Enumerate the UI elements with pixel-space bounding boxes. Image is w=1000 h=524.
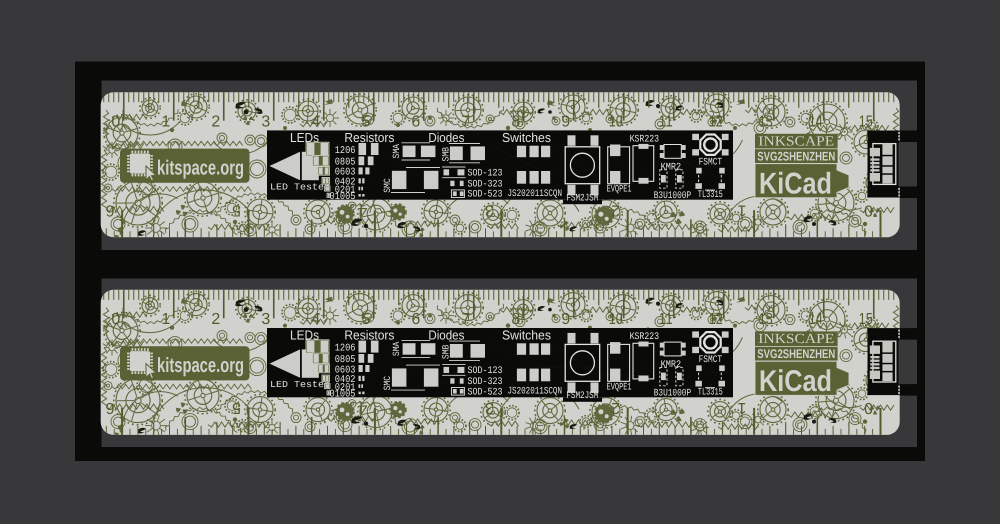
svg-text:SMA: SMA (391, 341, 402, 356)
svg-text:6: 6 (106, 202, 115, 219)
svg-text:INKSCAPE: INKSCAPE (758, 135, 834, 150)
svg-text:5: 5 (361, 114, 370, 131)
svg-text:kitspace.org: kitspace.org (157, 157, 244, 180)
svg-text:KiCad: KiCad (759, 168, 832, 201)
svg-text:Switches: Switches (502, 130, 551, 145)
svg-text:FSMCT: FSMCT (699, 157, 723, 168)
svg-text:SMC: SMC (382, 178, 393, 193)
svg-text:2: 2 (211, 114, 220, 131)
svg-text:6: 6 (106, 399, 115, 416)
svg-text:3: 3 (261, 311, 270, 328)
svg-text:1: 1 (738, 399, 747, 416)
svg-text:FSMCT: FSMCT (699, 355, 723, 366)
svg-text:4: 4 (311, 311, 320, 328)
svg-text:4: 4 (311, 114, 320, 131)
svg-text:01005: 01005 (330, 389, 356, 401)
svg-text:B3U1000P: B3U1000P (654, 191, 692, 202)
svg-text:INKSCAPE: INKSCAPE (758, 332, 834, 347)
svg-text:2: 2 (611, 399, 620, 416)
svg-text:0: 0 (111, 114, 120, 131)
svg-text:1206: 1206 (335, 145, 356, 157)
svg-text:EVQPE1: EVQPE1 (607, 382, 632, 393)
svg-text:8: 8 (511, 311, 520, 328)
svg-text:9: 9 (561, 114, 570, 131)
svg-text:Resistors: Resistors (344, 327, 394, 342)
svg-text:kitspace.org: kitspace.org (157, 354, 244, 377)
svg-text:SVG2SHENZHEN: SVG2SHENZHEN (757, 347, 835, 361)
svg-text:SOD-123: SOD-123 (468, 168, 503, 179)
svg-text:9: 9 (561, 311, 570, 328)
svg-text:14: 14 (809, 311, 823, 328)
svg-text:SOD-123: SOD-123 (468, 366, 503, 377)
svg-text:5: 5 (361, 311, 370, 328)
svg-text:KSR223: KSR223 (630, 332, 660, 343)
svg-text:SVG2SHENZHEN: SVG2SHENZHEN (757, 149, 835, 163)
svg-text:15: 15 (859, 311, 873, 328)
svg-text:2: 2 (611, 202, 620, 219)
svg-text:SOD-523: SOD-523 (468, 190, 503, 201)
svg-text:2: 2 (211, 311, 220, 328)
svg-text:FSM2JSM: FSM2JSM (566, 391, 598, 402)
svg-text:4: 4 (358, 202, 367, 219)
svg-text:7: 7 (461, 311, 470, 328)
svg-text:KSR223: KSR223 (630, 134, 660, 145)
svg-text:SMB: SMB (440, 344, 451, 359)
svg-text:EVQPE1: EVQPE1 (607, 185, 632, 196)
svg-text:3: 3 (261, 114, 270, 131)
svg-text:5: 5 (232, 202, 241, 219)
svg-text:12: 12 (709, 114, 723, 131)
svg-text:KMR2: KMR2 (661, 360, 682, 371)
svg-text:7: 7 (461, 114, 470, 131)
svg-text:5: 5 (232, 399, 241, 416)
svg-text:JS202011SCQN: JS202011SCQN (508, 189, 563, 200)
svg-text:JS202011SCQN: JS202011SCQN (508, 387, 563, 398)
svg-text:Switches: Switches (502, 327, 551, 342)
svg-text:12: 12 (709, 311, 723, 328)
svg-text:6: 6 (411, 114, 420, 131)
svg-text:Diodes: Diodes (428, 130, 464, 145)
svg-text:3: 3 (485, 202, 494, 219)
svg-text:KMR2: KMR2 (661, 162, 682, 173)
svg-text:Diodes: Diodes (428, 327, 464, 342)
svg-text:4: 4 (358, 399, 367, 416)
svg-text:10: 10 (609, 114, 623, 131)
svg-text:KiCad: KiCad (759, 365, 832, 398)
svg-text:TL3315: TL3315 (698, 387, 723, 398)
svg-text:1: 1 (161, 114, 170, 131)
svg-text:LED Tester: LED Tester (270, 182, 330, 193)
svg-text:0: 0 (111, 311, 120, 328)
svg-text:8: 8 (511, 114, 520, 131)
svg-text:1: 1 (738, 202, 747, 219)
svg-text:6: 6 (411, 311, 420, 328)
svg-text:SOD-523: SOD-523 (468, 387, 503, 398)
svg-text:11: 11 (659, 114, 673, 131)
svg-text:FSM2JSM: FSM2JSM (566, 193, 598, 204)
svg-text:0: 0 (864, 202, 873, 219)
svg-text:1206: 1206 (335, 342, 356, 354)
svg-text:10: 10 (609, 311, 623, 328)
svg-text:SMB: SMB (440, 147, 451, 162)
svg-text:Resistors: Resistors (344, 130, 394, 145)
svg-text:15: 15 (859, 114, 873, 131)
svg-text:SMC: SMC (382, 376, 393, 391)
svg-text:11: 11 (659, 311, 673, 328)
svg-text:13: 13 (759, 311, 773, 328)
svg-text:LED Tester: LED Tester (270, 379, 330, 390)
svg-text:0: 0 (864, 399, 873, 416)
svg-text:B3U1000P: B3U1000P (654, 389, 692, 400)
svg-text:SMA: SMA (391, 144, 402, 159)
svg-text:14: 14 (809, 114, 823, 131)
svg-text:TL3315: TL3315 (698, 190, 723, 201)
svg-text:01005: 01005 (330, 191, 356, 203)
svg-text:13: 13 (759, 114, 773, 131)
svg-text:1: 1 (161, 311, 170, 328)
svg-text:3: 3 (485, 399, 494, 416)
